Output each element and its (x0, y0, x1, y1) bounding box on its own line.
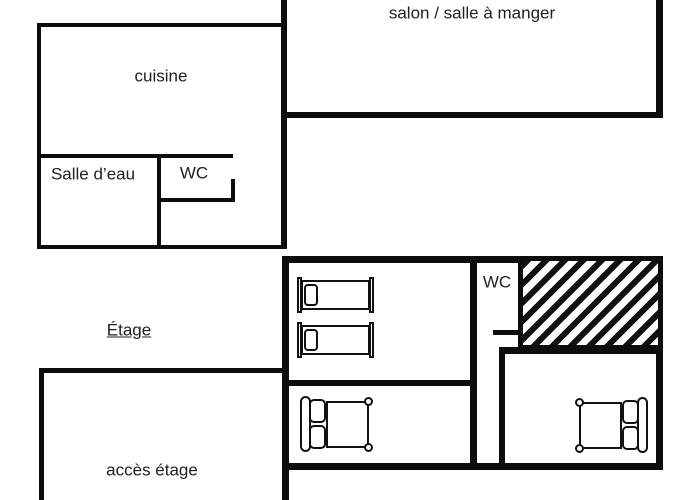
wall-salon-right (656, 0, 663, 118)
wall-corridor-left (470, 256, 477, 470)
wc-etage-label: WC (483, 274, 511, 291)
bed-post (575, 444, 584, 453)
wall-wc-etage-door (493, 330, 518, 335)
bed-pillow (304, 284, 318, 306)
etage-label: Étage (107, 322, 151, 339)
bed-footboard (369, 322, 374, 358)
bed-frame (579, 402, 622, 449)
wall-acces-top (39, 368, 288, 373)
bed-pillow (309, 425, 326, 449)
wall-acces-left (39, 368, 44, 500)
wall-cuisine-left (37, 23, 41, 249)
bed-post (364, 443, 373, 452)
double-bed-icon (575, 397, 648, 453)
wall-salle-deau-top (37, 154, 233, 158)
bed-pillow (304, 329, 318, 351)
single-bed-icon (297, 277, 374, 313)
double-bed-icon (300, 396, 373, 452)
hatched-area (518, 256, 663, 350)
wc-ground-label: WC (180, 165, 208, 182)
bed-pillow (622, 426, 639, 450)
bed-footboard (369, 277, 374, 313)
salon-label: salon / salle à manger (389, 5, 555, 22)
wall-twin-room-bottom (282, 380, 477, 386)
wall-salon-bottom (281, 112, 663, 118)
wall-bedroom-right-left (499, 347, 505, 470)
bed-pillow (622, 400, 639, 424)
floor-plan: salon / salle à manger cuisine Salle d’e… (0, 0, 700, 500)
bed-pillow (309, 399, 326, 423)
wall-ground-center-vertical (281, 0, 287, 249)
salle-deau-label: Salle d’eau (51, 166, 135, 183)
wall-cuisine-top (37, 23, 287, 27)
cuisine-label: cuisine (135, 68, 188, 85)
bed-post (364, 397, 373, 406)
wall-wc-bottom (159, 198, 235, 202)
bed-frame (326, 401, 369, 448)
bed-post (575, 398, 584, 407)
single-bed-icon (297, 322, 374, 358)
wall-ground-bottom (37, 245, 287, 249)
acces-etage-label: accès étage (106, 462, 198, 479)
wall-wc-door-jamb (231, 179, 235, 202)
